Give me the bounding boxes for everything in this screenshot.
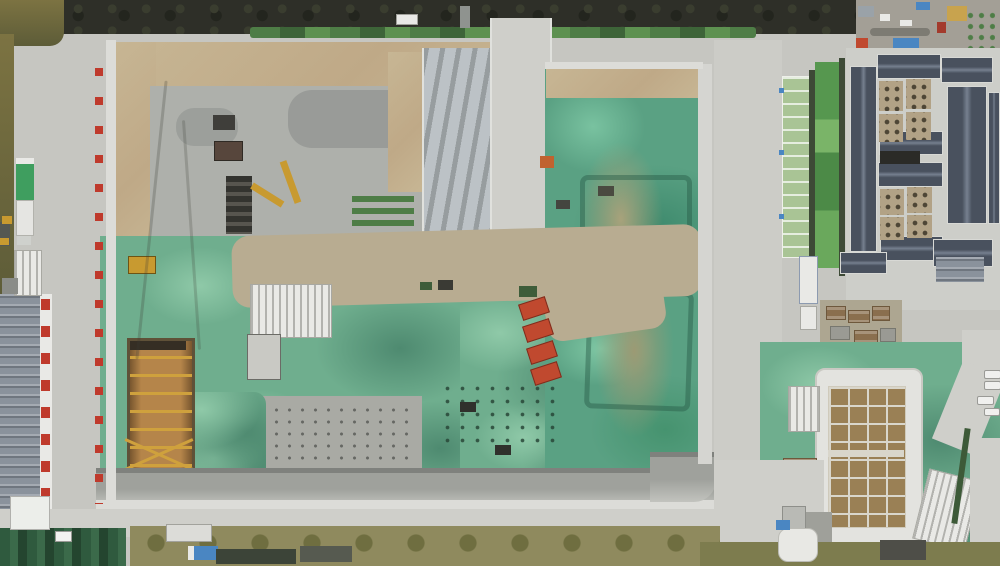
courtyard-8 <box>907 215 932 238</box>
blue-cab-truck <box>188 546 218 560</box>
orange-excavator-east <box>540 156 554 168</box>
crane-boom-2 <box>280 160 302 204</box>
brick-stack-2 <box>848 310 870 323</box>
courtyard-2 <box>906 79 931 109</box>
complex-far-east-roof <box>988 92 1000 224</box>
insulation-stacks-west <box>788 386 820 432</box>
brick-stack-1 <box>826 306 846 320</box>
machine-dark-2 <box>495 445 511 455</box>
straw-pile <box>947 6 967 21</box>
parked-car-4 <box>984 408 1000 416</box>
office-blue-unit-1 <box>779 88 784 93</box>
turf-strip <box>815 62 839 268</box>
east-pit-top-bench <box>546 68 702 98</box>
yellow-loader-2 <box>0 238 9 245</box>
dark-haul-truck <box>216 549 296 564</box>
courtyard-6 <box>907 187 932 213</box>
complex-southwest-roof <box>840 252 887 274</box>
brick-stack-3 <box>872 306 890 321</box>
storage-shed-roof <box>936 257 984 282</box>
white-containers <box>800 306 817 330</box>
parked-car-2 <box>984 381 1000 390</box>
equipment-southeast <box>880 540 926 560</box>
green-truck <box>420 282 432 290</box>
gray-stack-2 <box>880 328 896 342</box>
courtyard-void <box>880 151 920 164</box>
scattered-debris <box>870 28 930 36</box>
ramp-slope <box>388 52 422 192</box>
foundation-mid-band <box>828 450 904 457</box>
crane-boom-1 <box>250 183 284 208</box>
wall-safety-markers <box>95 68 103 504</box>
site-office-green-roof <box>782 76 811 258</box>
construction-site-aerial-photo <box>0 0 1000 566</box>
white-van <box>55 531 72 542</box>
complex-mid-wing-roof-2 <box>878 162 943 187</box>
courtyard-4 <box>906 112 931 140</box>
blue-tarp-small <box>916 2 930 10</box>
pit-east-wall <box>698 64 712 464</box>
parked-car-1 <box>984 370 1000 379</box>
rebar-stacks <box>226 176 252 234</box>
turf-hedge <box>839 58 845 276</box>
courtyard-3 <box>879 114 903 142</box>
industrial-shed-roof <box>0 294 40 526</box>
blue-barrel-group <box>776 520 790 530</box>
excavator-yellow <box>128 256 156 274</box>
gray-stack-1 <box>830 326 850 340</box>
complex-west-wing-roof <box>850 66 877 252</box>
machine-dark-1 <box>460 402 476 412</box>
pit-west-wall <box>106 40 116 508</box>
courtyard-7 <box>880 217 904 240</box>
machine-dark-3 <box>556 200 570 209</box>
deep-shaft-orange-pit <box>127 338 195 484</box>
white-tent <box>778 528 818 562</box>
small-dozer <box>438 280 453 290</box>
courtyard-5 <box>880 189 904 215</box>
covered-material-stacks <box>250 284 332 338</box>
gate-crane-gray <box>460 6 470 28</box>
left-tree-strip <box>0 34 14 300</box>
foundation-beam-grid <box>828 386 906 528</box>
gatehouse-white <box>10 496 50 530</box>
gate-truck-white <box>396 14 418 25</box>
site-gate-frame <box>799 256 818 304</box>
haul-ramp <box>422 48 494 238</box>
pile-cap-structure-1 <box>213 115 235 130</box>
south-grass <box>700 542 1000 566</box>
equipment-shelter <box>247 334 281 380</box>
complex-north-wing-roof <box>877 54 941 79</box>
pile-cap-structure-2 <box>214 141 243 161</box>
machine-dark-4 <box>598 186 614 196</box>
pit-northeast-wall <box>545 62 703 69</box>
center-access-road <box>490 18 552 236</box>
curved-hedge-dots <box>965 10 995 50</box>
complex-east-wing-roof <box>947 86 987 224</box>
white-trailer <box>16 200 34 236</box>
rig-support-truck <box>519 286 537 297</box>
green-tarp-truck <box>16 158 34 204</box>
office-blue-unit-2 <box>779 150 784 155</box>
covered-stacks-left <box>14 250 42 296</box>
pile-head-grid-dark <box>440 382 560 446</box>
courtyard-1 <box>879 81 903 111</box>
staging-shed <box>858 6 874 17</box>
white-crate-1 <box>880 14 890 21</box>
truck-cab <box>17 236 31 245</box>
shed-red-signage <box>41 299 50 521</box>
yellow-loader-1 <box>2 216 12 224</box>
gray-crate-left <box>2 278 18 294</box>
parked-car-3 <box>977 396 994 405</box>
office-blue-unit-3 <box>779 214 784 219</box>
complex-northeast-wing-roof <box>941 57 993 83</box>
white-crate-2 <box>900 20 912 26</box>
equipment-row-south <box>300 546 352 562</box>
red-container <box>937 22 946 33</box>
planted-rows <box>352 196 414 230</box>
pit-south-wall-edge <box>96 500 718 509</box>
pile-head-grid-faint <box>270 404 416 476</box>
flatbed-truck <box>166 524 212 542</box>
